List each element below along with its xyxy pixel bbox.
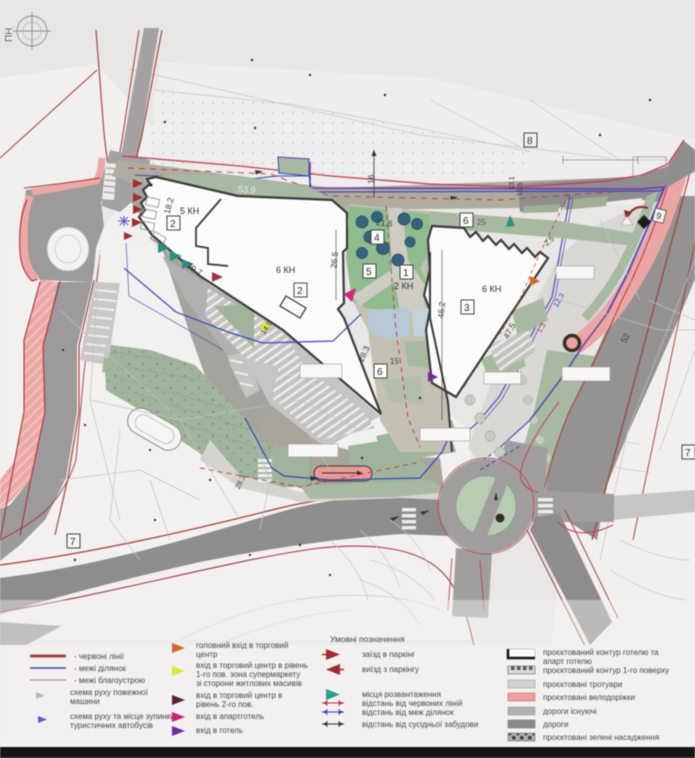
svg-text:проєктовані тротуари: проєктовані тротуари xyxy=(543,680,622,689)
svg-text:1-го пов. зона супермаркету: 1-го пов. зона супермаркету xyxy=(196,670,300,679)
svg-text:16: 16 xyxy=(366,174,376,184)
svg-text:7: 7 xyxy=(70,537,76,548)
svg-text:6 КН: 6 КН xyxy=(482,284,501,294)
svg-text:апарт готелю: апарт готелю xyxy=(543,657,592,666)
svg-text:зі сторони житлових масивів: зі сторони житлових масивів xyxy=(196,679,302,688)
svg-text:53.9: 53.9 xyxy=(238,184,256,195)
svg-text:вхід в торговий центр в: вхід в торговий центр в xyxy=(196,691,282,700)
svg-text:туристичних автобусів: туристичних автобусів xyxy=(70,721,153,730)
svg-text:21.6: 21.6 xyxy=(376,217,394,229)
svg-text:проєктовані зелені насадження: проєктовані зелені насадження xyxy=(543,733,659,742)
svg-text:5: 5 xyxy=(366,267,372,278)
svg-text:відстань від меж ділянок: відстань від меж ділянок xyxy=(362,708,454,717)
svg-text:виїзд з паркінгу: виїзд з паркінгу xyxy=(362,665,419,674)
svg-text:вхід в готель: вхід в готель xyxy=(196,726,243,735)
svg-text:1: 1 xyxy=(403,268,409,279)
svg-text:заїзд в паркінг: заїзд в паркінг xyxy=(362,650,415,659)
svg-text:7: 7 xyxy=(685,448,691,459)
svg-text:6 КН: 6 КН xyxy=(276,265,295,275)
svg-text:15: 15 xyxy=(390,357,399,366)
svg-text:відстань від сусідньої забудов: відстань від сусідньої забудови xyxy=(362,720,478,729)
svg-text:26.5: 26.5 xyxy=(329,251,340,269)
svg-text:проєктований контур 1-го повер: проєктований контур 1-го поверху xyxy=(543,666,669,675)
svg-text:головний вхід в торговий: головний вхід в торговий xyxy=(196,641,288,650)
svg-text:Умовні позначення: Умовні позначення xyxy=(330,634,405,644)
svg-text:2: 2 xyxy=(297,286,303,297)
svg-text:4: 4 xyxy=(374,233,380,244)
svg-text:8: 8 xyxy=(527,136,533,147)
svg-text:2 КН: 2 КН xyxy=(394,281,413,291)
svg-text:45.2: 45.2 xyxy=(436,301,447,319)
svg-text:центр: центр xyxy=(196,650,218,659)
svg-text:машини: машини xyxy=(70,697,100,706)
svg-text:вхід в апартготель: вхід в апартготель xyxy=(196,712,264,721)
svg-text:6: 6 xyxy=(377,367,383,378)
svg-text:2: 2 xyxy=(170,219,176,230)
svg-text:проєктовані велодоріжки: проєктовані велодоріжки xyxy=(543,693,635,702)
svg-text:схема руху та місце зупинки: схема руху та місце зупинки xyxy=(70,712,175,721)
svg-text:схема руху пожежної: схема руху пожежної xyxy=(70,688,149,697)
svg-text:5 КН: 5 КН xyxy=(180,206,199,216)
svg-text:3: 3 xyxy=(464,303,470,314)
svg-text:13.1: 13.1 xyxy=(509,176,516,190)
svg-text:рівень 2-го пов.: рівень 2-го пов. xyxy=(196,700,253,709)
svg-text:- межі благоустрою: - межі благоустрою xyxy=(74,676,145,685)
svg-text:відстань від червоних ліній: відстань від червоних ліній xyxy=(362,699,462,708)
svg-text:проєктований контур готелю та: проєктований контур готелю та xyxy=(543,648,659,657)
svg-text:- червоні лінії: - червоні лінії xyxy=(74,652,125,661)
svg-text:6: 6 xyxy=(463,216,469,227)
svg-text:15.5: 15.5 xyxy=(517,182,524,196)
svg-text:дороги існуючі: дороги існуючі xyxy=(543,707,597,716)
svg-text:дороги: дороги xyxy=(543,720,568,729)
svg-text:25: 25 xyxy=(477,218,486,227)
svg-text:- межі ділянок: - межі ділянок xyxy=(74,664,126,673)
svg-text:ПН: ПН xyxy=(4,28,15,42)
svg-text:вхід в торговий центр в рівень: вхід в торговий центр в рівень xyxy=(196,661,308,670)
svg-text:місця розвантаження: місця розвантаження xyxy=(362,690,441,699)
